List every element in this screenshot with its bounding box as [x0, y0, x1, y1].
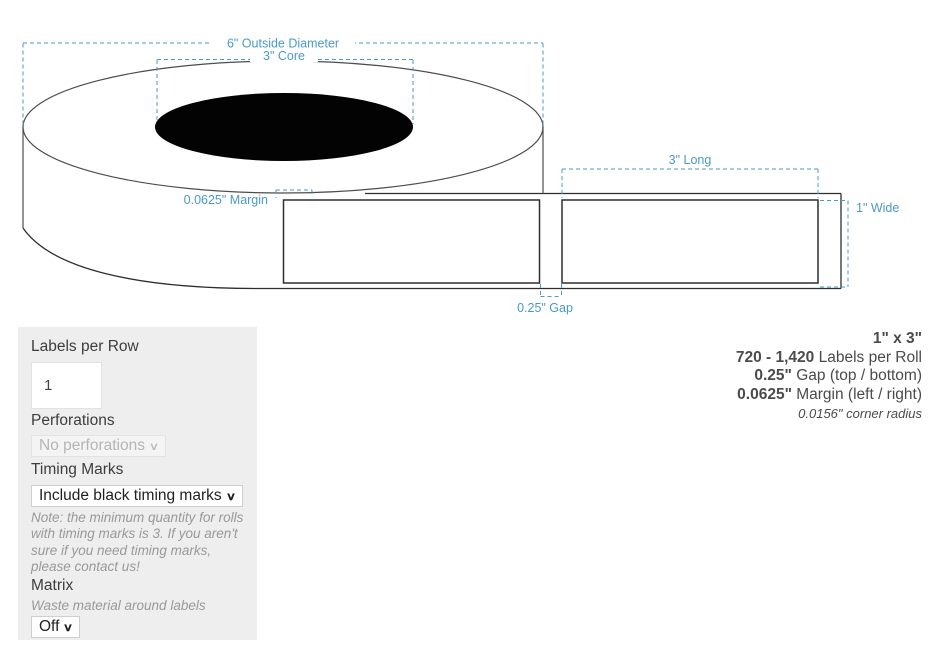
long-dimension-label: 3" Long — [669, 153, 712, 167]
label-rectangle-1 — [284, 200, 540, 283]
matrix-selected-value: Off — [39, 618, 59, 636]
timing-marks-note: Note: the minimum quantity for rolls wit… — [31, 510, 247, 576]
matrix-select[interactable]: Off ∨ — [31, 616, 80, 638]
options-panel: Labels per Row Perforations No perforati… — [18, 327, 257, 640]
perforations-selected-value: No perforations — [39, 437, 145, 455]
spec-labels-per-roll: 720 - 1,420 Labels per Roll — [736, 349, 922, 368]
chevron-down-icon: ∨ — [63, 621, 73, 634]
roll-core-hole — [155, 93, 413, 161]
perforations-select[interactable]: No perforations ∨ — [31, 435, 166, 457]
perforations-heading: Perforations — [31, 411, 244, 430]
spec-corner-radius: 0.0156" corner radius — [736, 405, 922, 424]
labels-per-row-heading: Labels per Row — [31, 337, 244, 356]
chevron-down-icon: ∨ — [149, 440, 159, 453]
wide-dimension-label: 1" Wide — [856, 201, 899, 215]
margin-dimension-label: 0.0625" Margin — [184, 193, 268, 207]
label-specs-summary: 1" x 3" 720 - 1,420 Labels per Roll 0.25… — [736, 330, 922, 424]
spec-margin: 0.0625" Margin (left / right) — [736, 386, 922, 405]
gap-dimension-label: 0.25" Gap — [517, 301, 573, 315]
roll-diagram: 6" Outside Diameter 3" Core 3" Long 1" W… — [0, 0, 934, 330]
label-roll-configurator: 6" Outside Diameter 3" Core 3" Long 1" W… — [0, 0, 934, 651]
timing-marks-selected-value: Include black timing marks — [39, 487, 222, 505]
labels-per-row-input[interactable] — [31, 362, 102, 409]
matrix-heading: Matrix — [31, 576, 244, 595]
chevron-down-icon: ∨ — [225, 490, 235, 503]
spec-size: 1" x 3" — [736, 330, 922, 349]
spec-gap: 0.25" Gap (top / bottom) — [736, 367, 922, 386]
label-rectangle-2 — [562, 200, 818, 283]
timing-marks-select[interactable]: Include black timing marks ∨ — [31, 485, 243, 507]
core-dimension-label: 3" Core — [263, 49, 305, 63]
timing-marks-heading: Timing Marks — [31, 460, 244, 479]
matrix-description: Waste material around labels — [31, 598, 247, 614]
